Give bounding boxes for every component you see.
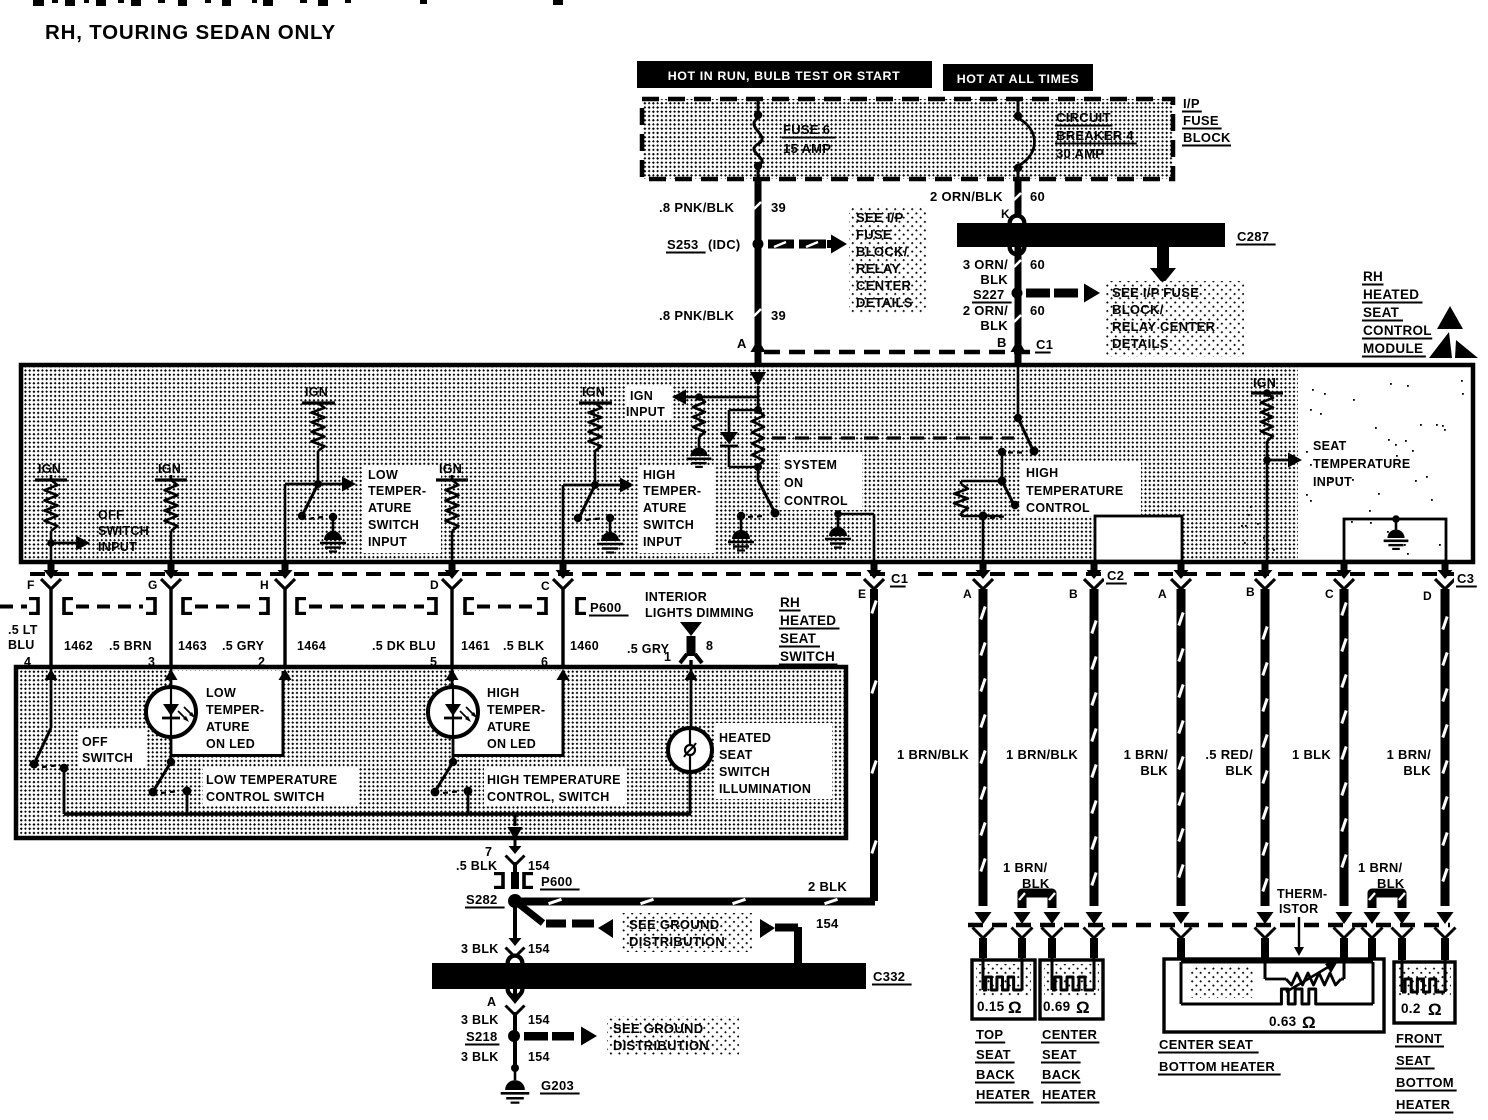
svg-text:THERM-: THERM- bbox=[1277, 887, 1327, 901]
svg-text:BOTTOM HEATER: BOTTOM HEATER bbox=[1159, 1059, 1275, 1074]
svg-text:.5 RED/: .5 RED/ bbox=[1205, 747, 1253, 762]
svg-text:B: B bbox=[1246, 585, 1255, 599]
svg-text:154: 154 bbox=[816, 916, 839, 931]
svg-text:1 BLK: 1 BLK bbox=[1292, 747, 1331, 762]
svg-text:BLOCK/: BLOCK/ bbox=[1112, 302, 1164, 317]
svg-text:0.2: 0.2 bbox=[1401, 1001, 1421, 1016]
svg-text:CENTER SEAT: CENTER SEAT bbox=[1159, 1037, 1253, 1052]
svg-text:.8 PNK/BLK: .8 PNK/BLK bbox=[659, 308, 735, 323]
svg-text:1460: 1460 bbox=[570, 639, 599, 653]
svg-text:TEMPERATURE: TEMPERATURE bbox=[1026, 484, 1124, 498]
svg-text:2 BLK: 2 BLK bbox=[808, 879, 847, 894]
svg-text:FUSE 6: FUSE 6 bbox=[783, 122, 830, 137]
svg-text:LOW: LOW bbox=[368, 468, 398, 482]
svg-text:IGN: IGN bbox=[38, 462, 61, 476]
svg-text:BLOCK: BLOCK bbox=[1183, 130, 1231, 145]
svg-text:HEATED: HEATED bbox=[780, 613, 836, 628]
svg-text:C332: C332 bbox=[873, 969, 905, 984]
svg-text:BLK: BLK bbox=[980, 318, 1008, 333]
svg-text:INPUT: INPUT bbox=[626, 405, 665, 419]
svg-text:60: 60 bbox=[1030, 303, 1045, 318]
svg-text:CONTROL SWITCH: CONTROL SWITCH bbox=[206, 790, 325, 804]
svg-text:ON: ON bbox=[784, 476, 803, 490]
svg-text:1462: 1462 bbox=[64, 639, 93, 653]
svg-text:S227: S227 bbox=[973, 287, 1005, 302]
svg-text:0.15: 0.15 bbox=[977, 999, 1005, 1014]
svg-text:SEE GROUND: SEE GROUND bbox=[613, 1021, 703, 1036]
svg-text:ATURE: ATURE bbox=[368, 501, 412, 515]
svg-text:MODULE: MODULE bbox=[1363, 341, 1423, 356]
svg-text:OFF: OFF bbox=[82, 735, 108, 749]
svg-text:3 BLK: 3 BLK bbox=[461, 1013, 499, 1027]
svg-text:C2: C2 bbox=[1107, 568, 1124, 583]
svg-text:RELAY CENTER: RELAY CENTER bbox=[1112, 319, 1216, 334]
svg-text:.5 DK BLU: .5 DK BLU bbox=[372, 639, 436, 653]
svg-text:Ω: Ω bbox=[1076, 998, 1090, 1017]
svg-text:F: F bbox=[27, 578, 35, 592]
svg-text:HIGH TEMPERATURE: HIGH TEMPERATURE bbox=[487, 773, 621, 787]
svg-text:OFF: OFF bbox=[98, 508, 124, 522]
svg-text:DETAILS: DETAILS bbox=[1112, 336, 1169, 351]
svg-text:CIRCUIT: CIRCUIT bbox=[1056, 110, 1111, 125]
svg-text:FUSE: FUSE bbox=[856, 227, 892, 242]
svg-text:INPUT: INPUT bbox=[643, 535, 682, 549]
svg-text:1 BRN/: 1 BRN/ bbox=[1358, 860, 1403, 875]
svg-text:1 BRN/BLK: 1 BRN/BLK bbox=[1006, 747, 1078, 762]
svg-text:SEAT: SEAT bbox=[1313, 439, 1347, 453]
svg-text:SEE I/P: SEE I/P bbox=[856, 210, 904, 225]
svg-text:BREAKER 4: BREAKER 4 bbox=[1056, 128, 1134, 143]
svg-text:ATURE: ATURE bbox=[206, 720, 250, 734]
svg-text:TEMPER-: TEMPER- bbox=[643, 484, 701, 498]
svg-text:SWITCH: SWITCH bbox=[719, 765, 770, 779]
svg-text:IGN: IGN bbox=[439, 462, 462, 476]
svg-text:154: 154 bbox=[528, 942, 550, 956]
svg-text:D: D bbox=[1423, 589, 1432, 603]
svg-text:60: 60 bbox=[1030, 257, 1045, 272]
svg-text:LIGHTS DIMMING: LIGHTS DIMMING bbox=[645, 606, 754, 620]
svg-text:SEAT: SEAT bbox=[1363, 305, 1400, 320]
svg-text:3 BLK: 3 BLK bbox=[461, 1050, 499, 1064]
svg-text:HEATED: HEATED bbox=[1363, 287, 1419, 302]
svg-text:ILLUMINATION: ILLUMINATION bbox=[719, 782, 811, 796]
svg-text:IGN: IGN bbox=[582, 385, 605, 399]
svg-text:SWITCH: SWITCH bbox=[368, 518, 419, 532]
svg-text:HIGH: HIGH bbox=[487, 686, 519, 700]
svg-text:HEATER: HEATER bbox=[1396, 1097, 1451, 1112]
svg-text:HOT AT ALL TIMES: HOT AT ALL TIMES bbox=[957, 72, 1079, 86]
svg-text:BLK: BLK bbox=[1403, 763, 1431, 778]
svg-text:S282: S282 bbox=[466, 892, 498, 907]
svg-text:LOW TEMPERATURE: LOW TEMPERATURE bbox=[206, 773, 337, 787]
svg-text:C: C bbox=[541, 579, 550, 593]
svg-text:15 AMP: 15 AMP bbox=[783, 141, 831, 156]
svg-text:Ω: Ω bbox=[1302, 1013, 1316, 1032]
svg-text:0.63: 0.63 bbox=[1269, 1014, 1297, 1029]
svg-text:3 BLK: 3 BLK bbox=[461, 942, 499, 956]
svg-text:SEAT: SEAT bbox=[1042, 1047, 1077, 1062]
svg-text:RH: RH bbox=[780, 595, 800, 610]
svg-text:DETAILS: DETAILS bbox=[856, 295, 913, 310]
svg-text:DISTRIBUTION: DISTRIBUTION bbox=[613, 1038, 709, 1053]
svg-text:154: 154 bbox=[528, 1050, 550, 1064]
svg-text:(IDC): (IDC) bbox=[708, 237, 741, 252]
svg-text:.8 PNK/BLK: .8 PNK/BLK bbox=[659, 200, 735, 215]
svg-text:HEATER: HEATER bbox=[976, 1087, 1031, 1102]
svg-text:BOTTOM: BOTTOM bbox=[1396, 1075, 1454, 1090]
svg-text:.5 BLK: .5 BLK bbox=[503, 639, 544, 653]
svg-text:8: 8 bbox=[706, 639, 713, 653]
svg-text:B: B bbox=[1069, 587, 1078, 601]
svg-text:H: H bbox=[260, 578, 269, 592]
svg-text:BLU: BLU bbox=[8, 638, 35, 652]
svg-text:SEAT: SEAT bbox=[976, 1047, 1011, 1062]
svg-text:C3: C3 bbox=[1457, 571, 1474, 586]
svg-text:154: 154 bbox=[528, 859, 550, 873]
svg-text:C: C bbox=[1325, 587, 1334, 601]
svg-text:60: 60 bbox=[1030, 189, 1045, 204]
svg-text:HEATED: HEATED bbox=[719, 731, 771, 745]
svg-text:E: E bbox=[858, 587, 866, 601]
svg-text:A: A bbox=[1158, 587, 1167, 601]
svg-text:1 BRN/: 1 BRN/ bbox=[1387, 747, 1432, 762]
svg-text:HEATER: HEATER bbox=[1042, 1087, 1097, 1102]
svg-text:INTERIOR: INTERIOR bbox=[645, 590, 707, 604]
svg-text:RELAY: RELAY bbox=[856, 261, 900, 276]
svg-text:154: 154 bbox=[528, 1013, 550, 1027]
svg-text:TEMPER-: TEMPER- bbox=[206, 703, 264, 717]
svg-text:39: 39 bbox=[771, 200, 786, 215]
svg-text:S218: S218 bbox=[466, 1029, 498, 1044]
svg-text:1464: 1464 bbox=[297, 639, 326, 653]
svg-text:ISTOR: ISTOR bbox=[1279, 902, 1318, 916]
svg-text:BLOCK/: BLOCK/ bbox=[856, 244, 908, 259]
svg-text:1 BRN/BLK: 1 BRN/BLK bbox=[897, 747, 969, 762]
svg-text:I/P: I/P bbox=[1183, 96, 1200, 111]
svg-text:SWITCH: SWITCH bbox=[98, 524, 149, 538]
svg-text:HOT IN RUN, BULB TEST OR START: HOT IN RUN, BULB TEST OR START bbox=[668, 69, 901, 83]
svg-text:BLK: BLK bbox=[1140, 763, 1168, 778]
svg-text:BACK: BACK bbox=[1042, 1067, 1081, 1082]
svg-text:LOW: LOW bbox=[206, 686, 236, 700]
svg-text:IGN: IGN bbox=[158, 462, 181, 476]
svg-text:SEAT: SEAT bbox=[719, 748, 753, 762]
svg-text:HIGH: HIGH bbox=[1026, 466, 1058, 480]
svg-text:ATURE: ATURE bbox=[643, 501, 687, 515]
svg-text:C1: C1 bbox=[1036, 337, 1053, 352]
svg-text:SWITCH: SWITCH bbox=[780, 649, 835, 664]
svg-text:1: 1 bbox=[664, 650, 671, 664]
svg-text:SEE GROUND: SEE GROUND bbox=[629, 917, 719, 932]
svg-text:G: G bbox=[148, 578, 158, 592]
svg-text:CONTROL: CONTROL bbox=[784, 494, 848, 508]
svg-text:Ω: Ω bbox=[1008, 998, 1022, 1017]
svg-text:FUSE: FUSE bbox=[1183, 113, 1219, 128]
svg-text:RH, TOURING SEDAN ONLY: RH, TOURING SEDAN ONLY bbox=[45, 21, 336, 44]
svg-text:TEMPER-: TEMPER- bbox=[487, 703, 545, 717]
svg-text:ON LED: ON LED bbox=[206, 737, 255, 751]
svg-text:TOP: TOP bbox=[976, 1027, 1003, 1042]
svg-text:FRONT: FRONT bbox=[1396, 1031, 1442, 1046]
svg-text:DISTRIBUTION: DISTRIBUTION bbox=[629, 934, 725, 949]
svg-text:S253: S253 bbox=[667, 237, 699, 252]
svg-text:P600: P600 bbox=[541, 874, 573, 889]
svg-text:SYSTEM: SYSTEM bbox=[784, 458, 837, 472]
svg-text:A: A bbox=[963, 587, 972, 601]
svg-text:C287: C287 bbox=[1237, 229, 1269, 244]
svg-text:TEMPERATURE: TEMPERATURE bbox=[1313, 457, 1411, 471]
svg-text:A: A bbox=[737, 336, 747, 351]
svg-text:.5 BRN: .5 BRN bbox=[109, 639, 152, 653]
svg-text:SEE I/P FUSE: SEE I/P FUSE bbox=[1112, 285, 1199, 300]
svg-text:IGN: IGN bbox=[1253, 376, 1276, 390]
svg-text:3 ORN/: 3 ORN/ bbox=[963, 257, 1008, 272]
svg-text:BLK: BLK bbox=[1225, 763, 1253, 778]
svg-text:D: D bbox=[430, 578, 439, 592]
svg-text:RH: RH bbox=[1363, 269, 1383, 284]
svg-text:2 ORN/BLK: 2 ORN/BLK bbox=[930, 189, 1003, 204]
svg-text:CONTROL: CONTROL bbox=[1026, 501, 1090, 515]
svg-text:BACK: BACK bbox=[976, 1067, 1015, 1082]
svg-text:TEMPER-: TEMPER- bbox=[368, 484, 426, 498]
svg-text:SEAT: SEAT bbox=[1396, 1053, 1431, 1068]
svg-text:INPUT: INPUT bbox=[368, 535, 407, 549]
svg-text:P600: P600 bbox=[590, 600, 622, 615]
svg-text:INPUT: INPUT bbox=[1313, 475, 1352, 489]
svg-text:CONTROL, SWITCH: CONTROL, SWITCH bbox=[487, 790, 610, 804]
svg-text:7: 7 bbox=[485, 845, 492, 859]
svg-text:G203: G203 bbox=[541, 1078, 574, 1093]
svg-text:0.69: 0.69 bbox=[1043, 999, 1070, 1014]
svg-text:IGN: IGN bbox=[305, 385, 328, 399]
svg-text:SWITCH: SWITCH bbox=[82, 751, 133, 765]
svg-text:.5 BLK: .5 BLK bbox=[456, 859, 497, 873]
svg-text:HIGH: HIGH bbox=[643, 468, 675, 482]
svg-text:1461: 1461 bbox=[461, 639, 490, 653]
svg-text:ON LED: ON LED bbox=[487, 737, 536, 751]
svg-text:BLK: BLK bbox=[980, 272, 1008, 287]
svg-text:1463: 1463 bbox=[178, 639, 207, 653]
svg-text:1 BRN/: 1 BRN/ bbox=[1003, 860, 1048, 875]
svg-text:Ω: Ω bbox=[1428, 1000, 1442, 1019]
svg-text:B: B bbox=[997, 335, 1007, 350]
svg-text:A: A bbox=[487, 995, 496, 1009]
svg-text:SEAT: SEAT bbox=[780, 631, 817, 646]
svg-text:.5 GRY: .5 GRY bbox=[222, 639, 265, 653]
svg-text:.5 LT: .5 LT bbox=[8, 623, 38, 637]
svg-text:ATURE: ATURE bbox=[487, 720, 531, 734]
svg-text:2 ORN/: 2 ORN/ bbox=[963, 303, 1008, 318]
svg-text:39: 39 bbox=[771, 308, 786, 323]
svg-text:CENTER: CENTER bbox=[1042, 1027, 1098, 1042]
svg-text:SWITCH: SWITCH bbox=[643, 518, 694, 532]
svg-text:30 AMP: 30 AMP bbox=[1056, 146, 1104, 161]
svg-text:INPUT: INPUT bbox=[98, 540, 137, 554]
svg-text:1 BRN/: 1 BRN/ bbox=[1124, 747, 1169, 762]
svg-text:CENTER: CENTER bbox=[856, 278, 912, 293]
svg-text:C1: C1 bbox=[891, 571, 908, 586]
svg-text:CONTROL: CONTROL bbox=[1363, 323, 1432, 338]
svg-text:IGN: IGN bbox=[630, 389, 653, 403]
